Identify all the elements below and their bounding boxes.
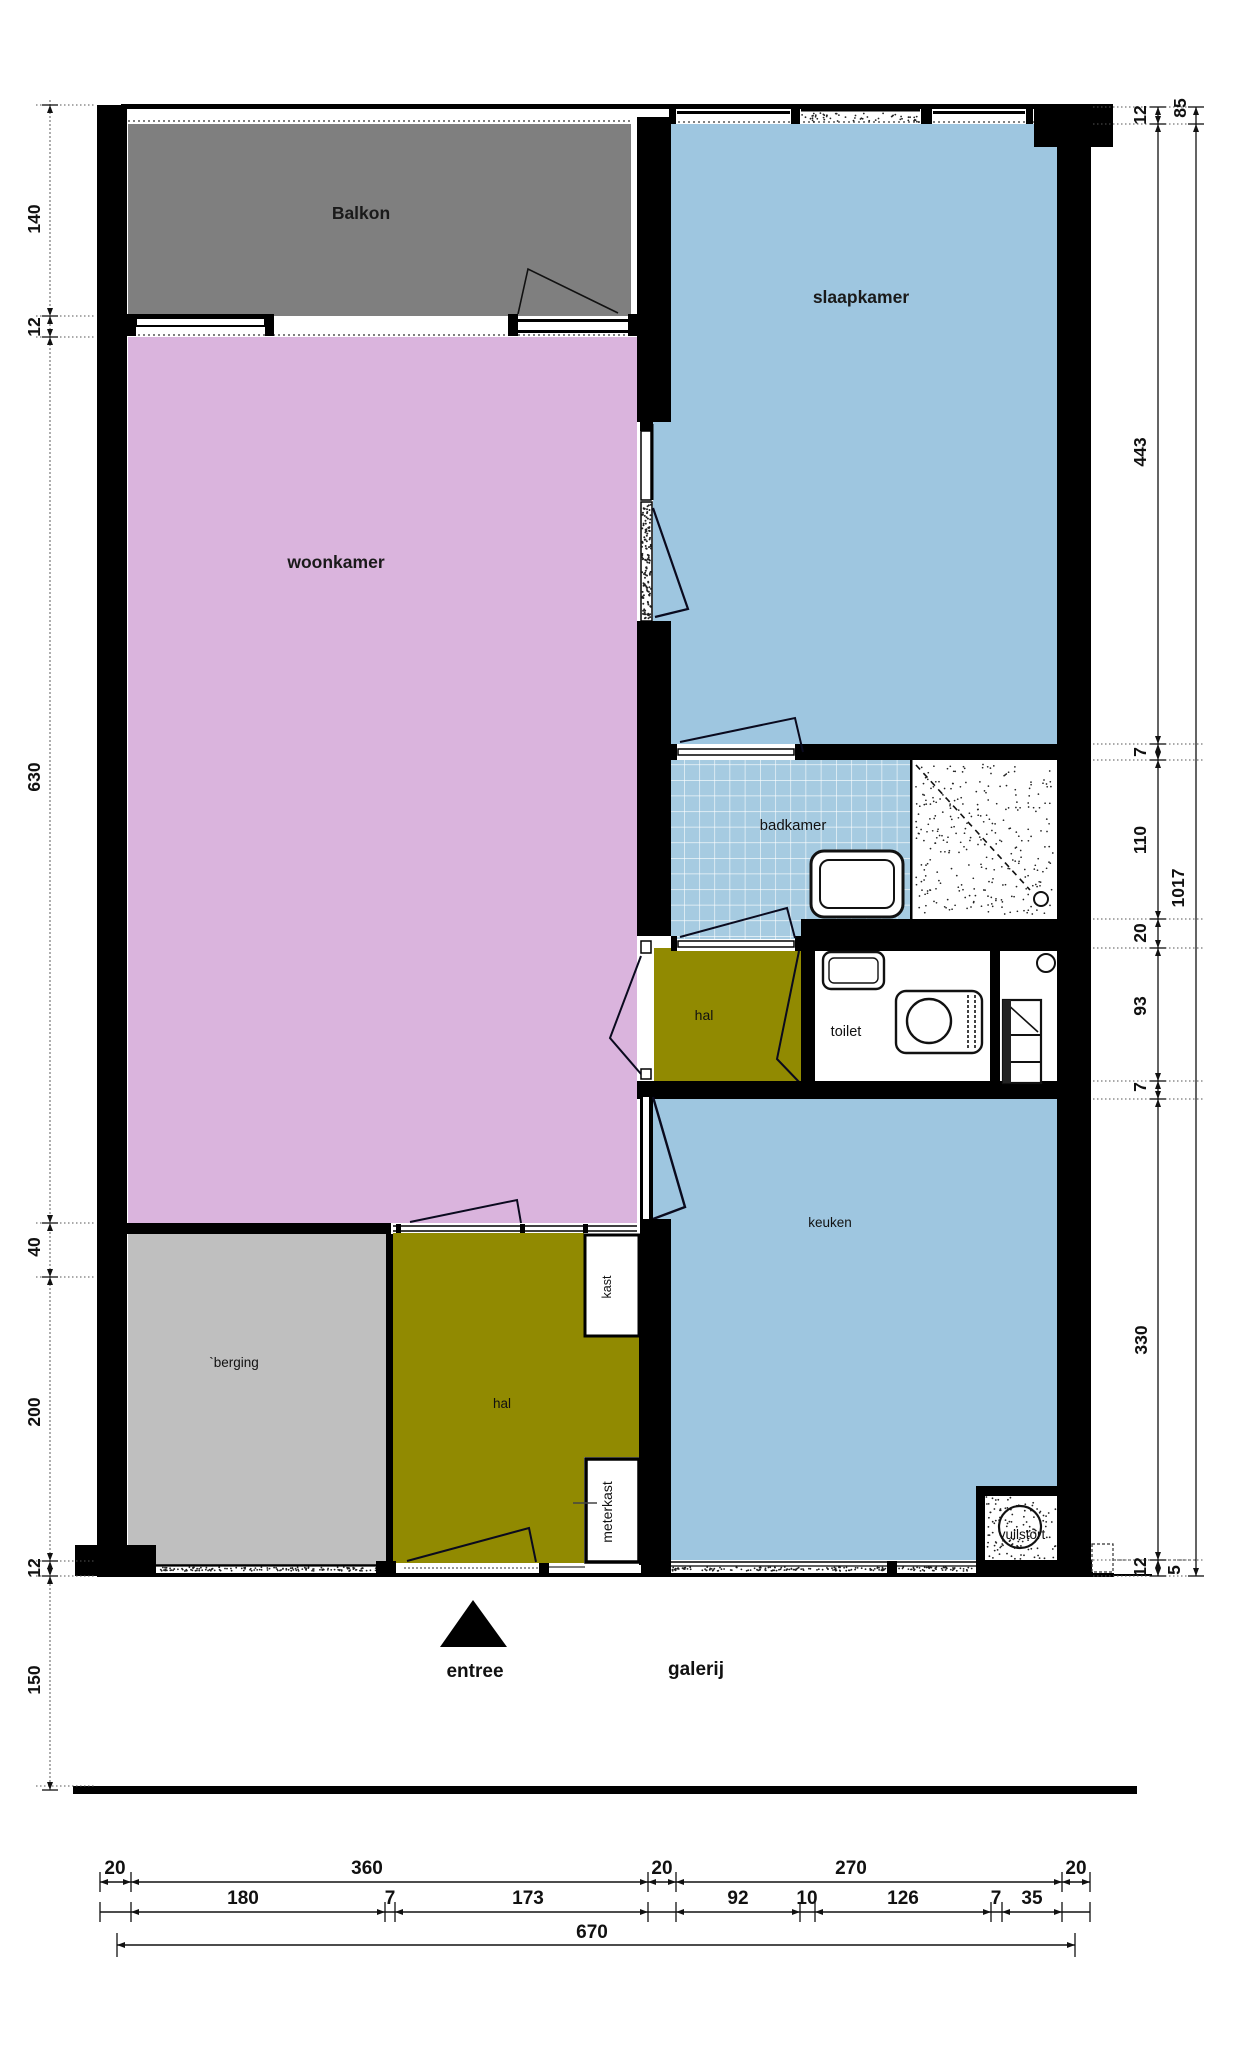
svg-text:7: 7: [991, 1888, 1002, 1909]
svg-text:270: 270: [835, 1858, 867, 1879]
svg-text:200: 200: [24, 1397, 44, 1426]
svg-text:7: 7: [1130, 1082, 1150, 1092]
svg-text:5: 5: [1164, 1565, 1184, 1575]
svg-text:`berging: `berging: [209, 1355, 259, 1370]
svg-text:hal: hal: [493, 1396, 511, 1411]
svg-text:12: 12: [24, 317, 44, 337]
svg-text:670: 670: [576, 1922, 608, 1943]
svg-text:entree: entree: [446, 1661, 503, 1682]
svg-text:173: 173: [512, 1888, 544, 1909]
svg-text:hal: hal: [695, 1007, 714, 1023]
svg-text:20: 20: [1130, 923, 1150, 943]
svg-text:92: 92: [727, 1888, 748, 1909]
svg-text:150: 150: [24, 1665, 44, 1694]
svg-text:93: 93: [1130, 996, 1150, 1016]
svg-text:1017: 1017: [1168, 869, 1188, 908]
svg-text:vuilstort: vuilstort: [999, 1527, 1046, 1542]
svg-text:35: 35: [1021, 1888, 1043, 1909]
svg-text:40: 40: [24, 1237, 44, 1257]
svg-text:360: 360: [351, 1858, 383, 1879]
svg-text:330: 330: [1131, 1325, 1151, 1354]
svg-text:10: 10: [796, 1888, 817, 1909]
svg-text:20: 20: [651, 1858, 672, 1879]
svg-text:badkamer: badkamer: [760, 817, 827, 834]
svg-text:20: 20: [1065, 1858, 1086, 1879]
svg-text:7: 7: [385, 1888, 396, 1909]
svg-text:140: 140: [24, 204, 44, 233]
svg-text:12: 12: [24, 1558, 44, 1578]
svg-text:galerij: galerij: [668, 1659, 724, 1680]
svg-text:12: 12: [1130, 105, 1150, 125]
svg-text:12: 12: [1130, 1557, 1150, 1577]
svg-text:keuken: keuken: [808, 1215, 852, 1230]
svg-text:slaapkamer: slaapkamer: [813, 287, 910, 307]
svg-text:630: 630: [24, 762, 44, 791]
svg-text:kast: kast: [600, 1275, 614, 1298]
svg-text:toilet: toilet: [831, 1024, 862, 1040]
svg-text:7: 7: [1130, 747, 1150, 757]
svg-text:110: 110: [1130, 826, 1150, 854]
svg-text:Balkon: Balkon: [332, 203, 390, 223]
svg-text:85: 85: [1170, 98, 1190, 118]
svg-text:126: 126: [887, 1888, 919, 1909]
svg-text:woonkamer: woonkamer: [286, 552, 384, 572]
svg-text:443: 443: [1130, 437, 1150, 466]
svg-text:180: 180: [227, 1888, 259, 1909]
svg-text:20: 20: [104, 1858, 125, 1879]
svg-text:meterkast: meterkast: [599, 1481, 615, 1543]
